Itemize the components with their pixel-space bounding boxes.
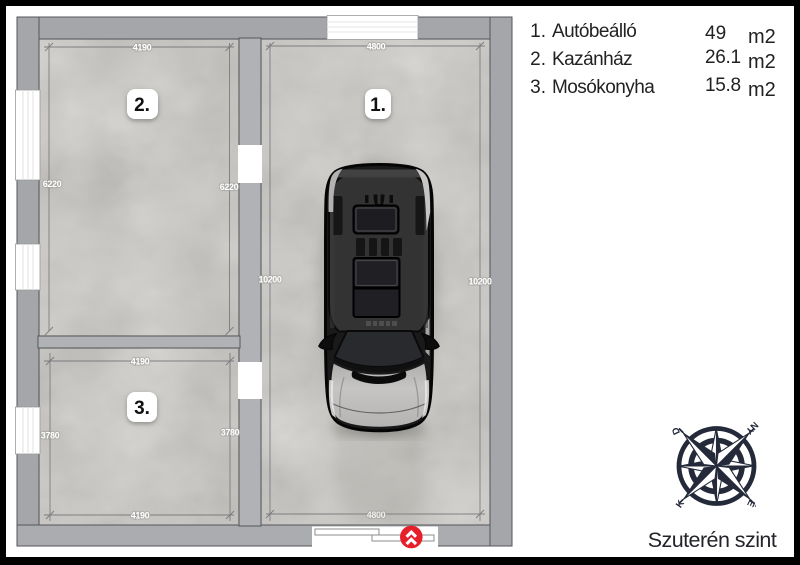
svg-text:3.: 3. <box>530 77 546 98</box>
svg-text:2.: 2. <box>134 95 150 116</box>
svg-text:m2: m2 <box>748 26 776 48</box>
svg-text:10200: 10200 <box>258 275 281 285</box>
svg-text:15.8: 15.8 <box>705 75 741 96</box>
svg-text:6220: 6220 <box>43 179 62 189</box>
svg-text:Mosókonyha: Mosókonyha <box>552 77 655 98</box>
svg-text:49: 49 <box>705 23 726 44</box>
svg-text:Autóbeálló: Autóbeálló <box>552 21 636 42</box>
svg-text:10200: 10200 <box>468 277 491 287</box>
svg-text:4190: 4190 <box>131 357 150 367</box>
svg-text:3780: 3780 <box>221 428 240 438</box>
svg-text:Kazánház: Kazánház <box>552 49 632 70</box>
svg-text:m2: m2 <box>748 79 776 101</box>
svg-text:4190: 4190 <box>131 511 150 521</box>
svg-text:1.: 1. <box>530 21 546 42</box>
svg-text:2.: 2. <box>530 49 546 70</box>
svg-text:3780: 3780 <box>41 431 60 441</box>
svg-text:4190: 4190 <box>133 43 152 53</box>
svg-text:4800: 4800 <box>367 42 386 52</box>
svg-text:m2: m2 <box>748 51 776 73</box>
svg-text:26.1: 26.1 <box>705 47 741 68</box>
svg-text:3.: 3. <box>134 398 150 419</box>
svg-text:Szuterén szint: Szuterén szint <box>648 528 777 552</box>
svg-text:6220: 6220 <box>220 182 239 192</box>
svg-text:1.: 1. <box>370 95 386 116</box>
